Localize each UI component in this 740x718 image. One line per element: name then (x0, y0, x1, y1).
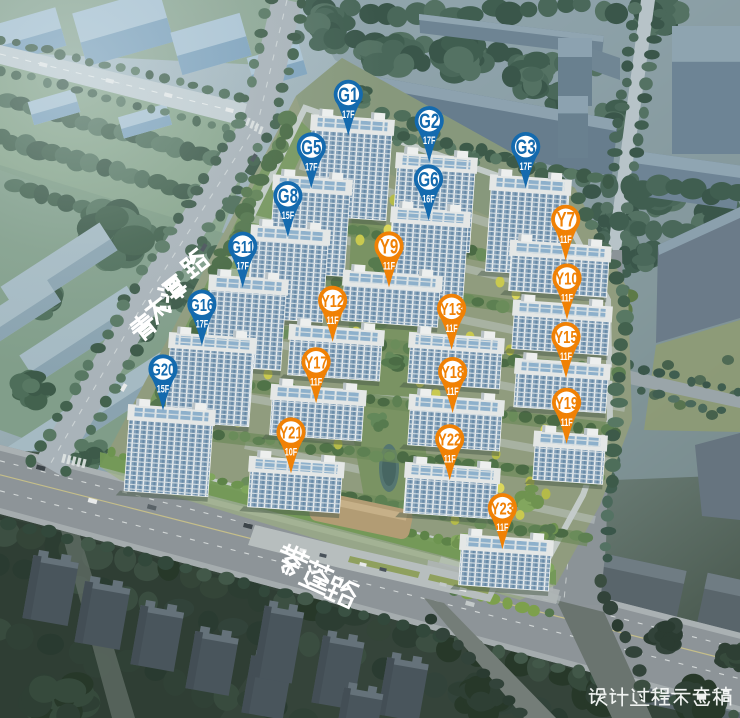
svg-text:G8: G8 (278, 184, 298, 208)
svg-text:11F: 11F (561, 416, 573, 428)
svg-text:Y15: Y15 (554, 328, 577, 348)
svg-text:Y22: Y22 (438, 430, 461, 450)
svg-text:G2: G2 (419, 109, 439, 133)
svg-text:16F: 16F (422, 193, 435, 205)
svg-text:Y21: Y21 (279, 424, 302, 444)
svg-text:10F: 10F (285, 446, 298, 458)
svg-text:Y7: Y7 (556, 207, 574, 231)
svg-text:11F: 11F (560, 233, 572, 245)
svg-text:Y18: Y18 (441, 363, 464, 383)
svg-text:11F: 11F (310, 376, 322, 388)
svg-text:G11: G11 (231, 238, 255, 258)
svg-text:11F: 11F (383, 260, 395, 272)
svg-text:Y12: Y12 (321, 292, 344, 312)
svg-text:11F: 11F (561, 292, 573, 304)
svg-text:G3: G3 (516, 134, 536, 158)
svg-text:Y19: Y19 (555, 394, 578, 414)
svg-text:G16: G16 (190, 296, 215, 316)
svg-text:G20: G20 (151, 361, 176, 381)
svg-text:17F: 17F (519, 161, 532, 173)
svg-text:15F: 15F (282, 210, 295, 222)
svg-text:11F: 11F (327, 315, 339, 327)
svg-text:17F: 17F (423, 135, 436, 147)
svg-text:Y13: Y13 (440, 300, 463, 320)
svg-text:11F: 11F (560, 351, 572, 363)
svg-text:Y9: Y9 (380, 234, 398, 258)
svg-text:11F: 11F (446, 322, 458, 334)
svg-text:11F: 11F (444, 453, 456, 465)
svg-text:Y17: Y17 (305, 353, 328, 373)
svg-text:17F: 17F (196, 318, 209, 330)
svg-text:G1: G1 (338, 82, 358, 106)
svg-text:11F: 11F (447, 386, 459, 398)
svg-text:15F: 15F (157, 383, 170, 395)
svg-text:11F: 11F (496, 522, 508, 534)
svg-text:Y10: Y10 (555, 270, 578, 290)
svg-text:17F: 17F (236, 260, 249, 272)
svg-text:Y23: Y23 (491, 499, 514, 519)
svg-text:G6: G6 (418, 167, 438, 191)
svg-text:17F: 17F (305, 161, 318, 173)
svg-text:17F: 17F (342, 109, 355, 121)
svg-text:G5: G5 (301, 135, 321, 159)
